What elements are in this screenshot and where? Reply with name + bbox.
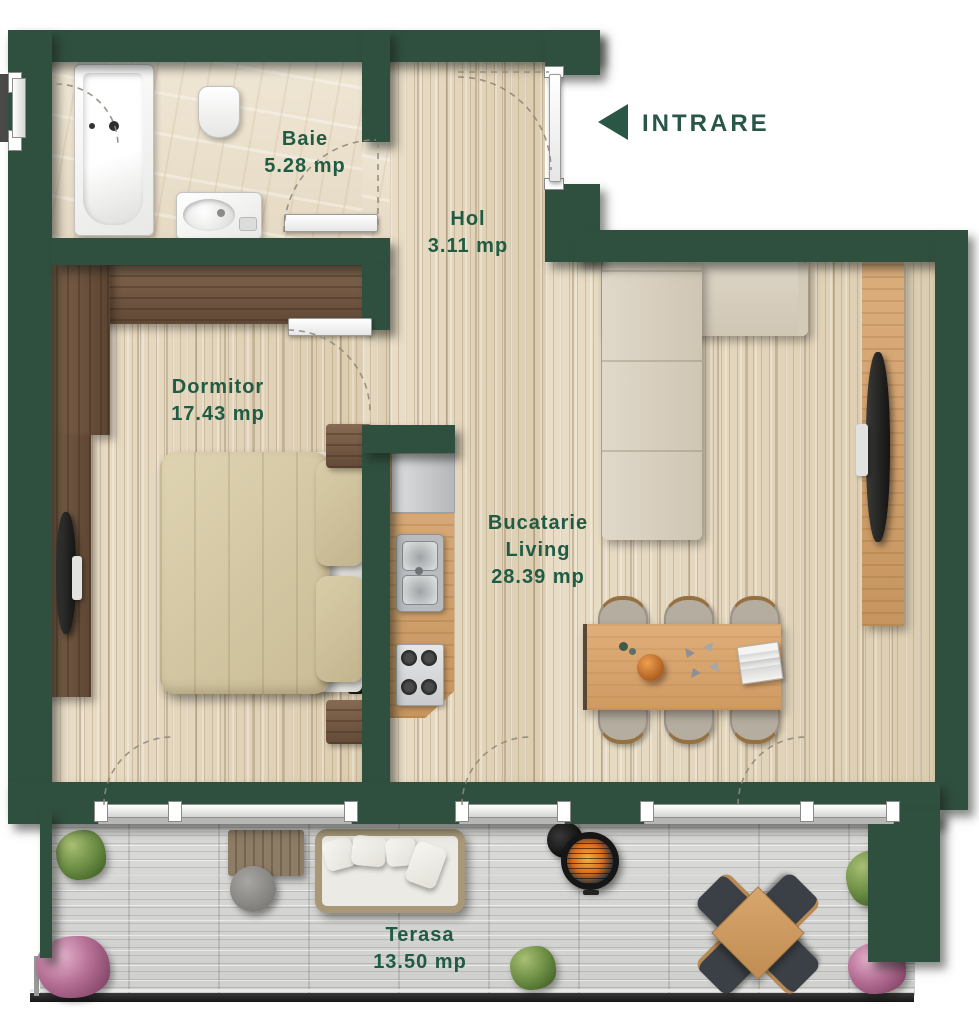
living-tv [866, 352, 890, 542]
wardrobe-side [45, 255, 110, 435]
bedroom-tv-mount [72, 556, 82, 600]
bedroom-door [288, 318, 372, 336]
room-area: 3.11 mp [368, 233, 568, 260]
entrance-door [549, 74, 561, 182]
cutlery [709, 662, 719, 672]
window-cap [455, 801, 469, 822]
bedroom-window [98, 804, 352, 818]
cutlery [691, 668, 701, 678]
bathroom-window [12, 78, 26, 138]
fridge [391, 453, 455, 513]
room-label-terasa: Terasa 13.50 mp [320, 922, 520, 976]
burner [401, 679, 417, 695]
window-cap [640, 801, 654, 822]
wall-living-top [575, 230, 940, 262]
room-area: 28.39 mp [438, 564, 638, 591]
window-sill [98, 817, 352, 824]
living-window [644, 804, 894, 818]
window-sill [644, 817, 894, 824]
room-label-dormitor: Dormitor 17.43 mp [118, 374, 318, 428]
room-name: Baie [205, 126, 405, 153]
wall-bedroom-kitchen [362, 425, 390, 810]
living-window [459, 804, 565, 818]
glassware [619, 642, 628, 651]
window-cap [344, 801, 358, 822]
room-name: Hol [368, 206, 568, 233]
kitchen-sink [396, 534, 444, 612]
window-sill [459, 817, 565, 824]
room-area: 13.50 mp [320, 949, 520, 976]
sofa-body [602, 262, 702, 540]
bed-pillow [316, 576, 364, 682]
room-area: 17.43 mp [118, 401, 318, 428]
bush-green [56, 830, 106, 880]
burner [421, 679, 437, 695]
bathroom-sink [176, 192, 262, 240]
magazine [737, 641, 784, 684]
window-cap [800, 801, 814, 822]
terrace-stone-table [230, 866, 276, 912]
bed-duvet [160, 452, 330, 694]
bathroom-door [284, 214, 378, 232]
grill-handle [583, 890, 599, 895]
window-cap [557, 801, 571, 822]
daybed-pillow [351, 835, 387, 868]
entrance-label: INTRARE [642, 110, 770, 138]
cutlery [703, 642, 713, 652]
window-cap [94, 801, 108, 822]
glassware [629, 648, 636, 655]
floor-plan: Baie 5.28 mp Hol 3.11 mp Dormitor 17.43 … [0, 0, 979, 1024]
grill-grate [567, 838, 613, 884]
wall-kitchen-stub [362, 425, 455, 453]
sink-soap-tray [239, 217, 257, 231]
bed-pillow [316, 460, 364, 566]
bathtub-basin [83, 73, 143, 225]
window-cap [168, 801, 182, 822]
terrace-edge-dark [30, 993, 914, 1002]
terrace-daybed [315, 829, 465, 913]
bedroom-door-threshold [362, 330, 390, 425]
room-area: 5.28 mp [205, 153, 405, 180]
wall-bath-bedroom [52, 238, 390, 265]
bathtub-drain [109, 121, 119, 131]
room-name: Living [438, 537, 638, 564]
sink-faucet [217, 209, 225, 217]
bathtub-faucet [89, 123, 95, 129]
wall-right [935, 230, 968, 810]
burner [421, 650, 437, 666]
room-label-bucatarie-living: Bucatarie Living 28.39 mp [438, 510, 638, 591]
room-label-baie: Baie 5.28 mp [205, 126, 405, 180]
wall-terrace-right [868, 810, 940, 962]
bathtub [74, 64, 154, 236]
entrance-arrow-icon [598, 104, 628, 140]
wall-top [8, 30, 600, 62]
room-label-hol: Hol 3.11 mp [368, 206, 568, 260]
living-tv-mount [856, 424, 868, 476]
wall-terrace-left [40, 810, 52, 958]
stove [396, 644, 444, 706]
cutlery [685, 648, 695, 658]
room-name: Terasa [320, 922, 520, 949]
dining-table [583, 624, 781, 710]
sink-bowl [402, 575, 438, 605]
window-cap [886, 801, 900, 822]
room-name: Dormitor [118, 374, 318, 401]
fruit-bowl [637, 654, 664, 681]
kitchen-faucet [415, 567, 423, 575]
room-name: Bucatarie [438, 510, 638, 537]
burner [401, 650, 417, 666]
grill [561, 832, 619, 890]
sink-basin [183, 199, 235, 231]
